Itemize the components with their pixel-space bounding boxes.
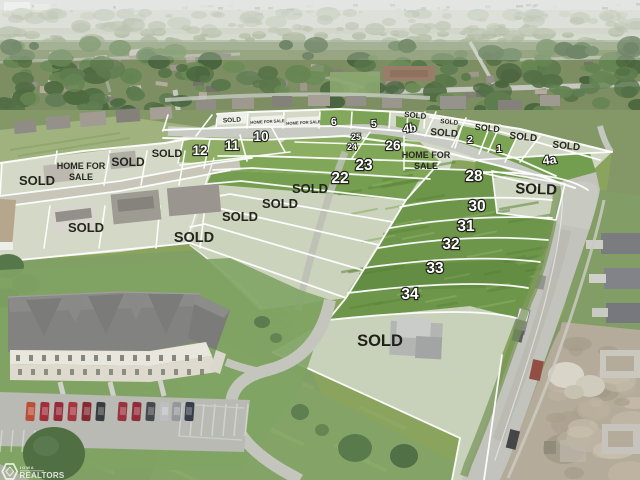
svg-text:10: 10 (253, 129, 268, 144)
svg-text:31: 31 (457, 218, 475, 235)
svg-text:4b: 4b (402, 122, 417, 135)
svg-text:SOLD: SOLD (19, 173, 55, 188)
svg-text:23: 23 (355, 157, 373, 174)
svg-text:1: 1 (496, 143, 502, 155)
svg-text:SOLD: SOLD (223, 117, 242, 125)
svg-text:HOME FOR: HOME FOR (57, 161, 106, 171)
svg-text:SALE: SALE (414, 161, 438, 171)
svg-text:SOLD: SOLD (430, 127, 458, 140)
svg-text:24: 24 (347, 142, 357, 152)
svg-text:SOLD: SOLD (515, 180, 557, 198)
svg-text:30: 30 (468, 198, 485, 215)
svg-text:11: 11 (225, 138, 240, 153)
svg-text:REALTORS: REALTORS (20, 471, 65, 480)
svg-text:SOLD: SOLD (111, 155, 145, 169)
svg-text:22: 22 (331, 170, 348, 187)
svg-text:HOME FOR: HOME FOR (402, 150, 451, 160)
svg-text:2: 2 (467, 134, 473, 146)
svg-text:SALE: SALE (69, 172, 93, 182)
svg-text:SOLD: SOLD (174, 230, 214, 246)
svg-text:SOLD: SOLD (357, 332, 403, 350)
svg-text:IOWA: IOWA (20, 465, 35, 470)
svg-text:12: 12 (192, 143, 207, 158)
svg-text:4a: 4a (542, 152, 559, 168)
svg-text:33: 33 (426, 260, 444, 277)
svg-text:28: 28 (465, 168, 483, 185)
svg-text:32: 32 (442, 236, 459, 253)
svg-text:5: 5 (370, 118, 377, 130)
svg-text:SOLD: SOLD (222, 209, 258, 224)
svg-text:SOLD: SOLD (262, 196, 298, 211)
svg-text:SOLD: SOLD (292, 181, 328, 196)
svg-text:6: 6 (330, 116, 337, 128)
svg-text:34: 34 (401, 286, 419, 303)
svg-text:SOLD: SOLD (68, 220, 104, 235)
svg-text:26: 26 (385, 138, 401, 153)
svg-text:25: 25 (351, 132, 361, 142)
svg-text:SOLD: SOLD (152, 148, 183, 160)
